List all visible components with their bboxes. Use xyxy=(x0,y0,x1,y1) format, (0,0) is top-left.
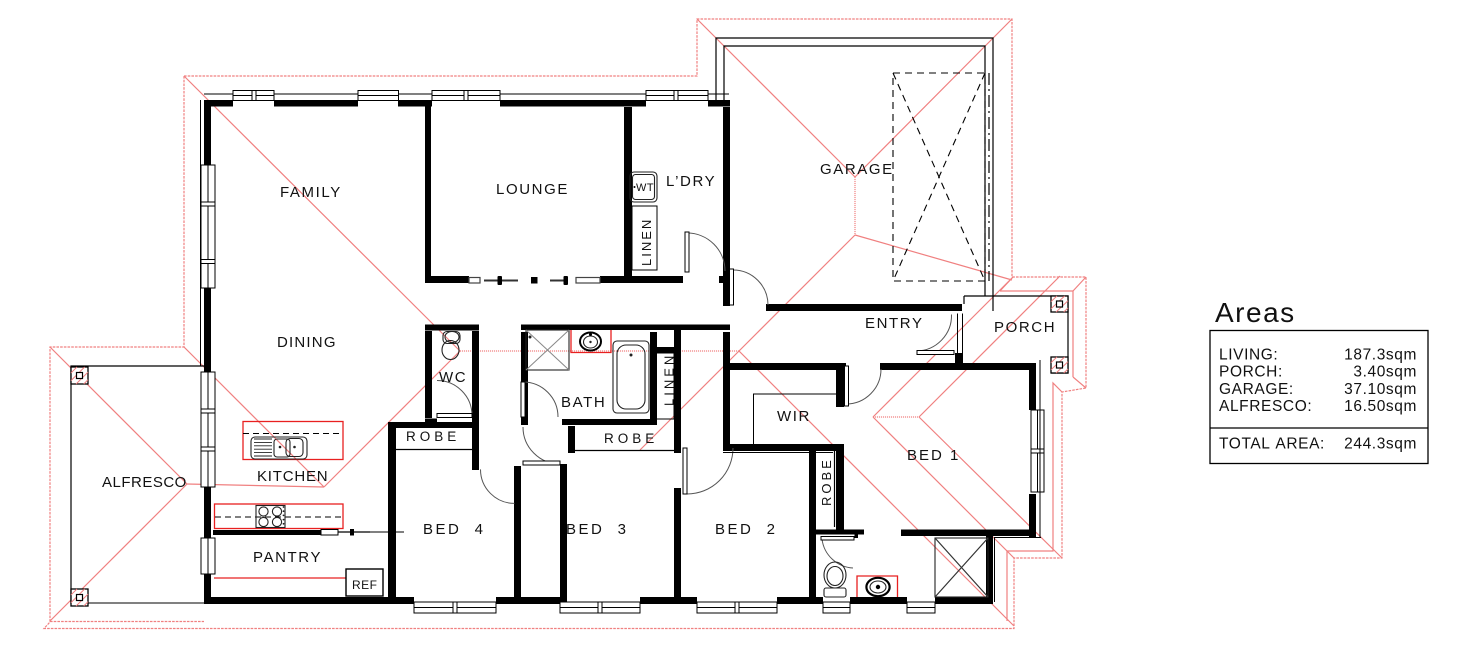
svg-text:WIR: WIR xyxy=(777,408,811,425)
svg-text:BED 4: BED 4 xyxy=(423,521,486,538)
svg-text:REF: REF xyxy=(352,578,378,592)
svg-text:3.40sqm: 3.40sqm xyxy=(1353,364,1417,381)
svg-text:PANTRY: PANTRY xyxy=(253,549,322,566)
svg-text:16.50sqm: 16.50sqm xyxy=(1344,398,1417,415)
svg-text:ROBE: ROBE xyxy=(819,457,834,506)
svg-text:PORCH: PORCH xyxy=(994,319,1056,336)
svg-text:DINING: DINING xyxy=(277,334,337,351)
svg-text:187.3sqm: 187.3sqm xyxy=(1344,347,1417,364)
svg-text:37.10sqm: 37.10sqm xyxy=(1344,381,1417,398)
svg-text:WT: WT xyxy=(636,182,654,194)
svg-text:ALFRESCO: ALFRESCO xyxy=(102,474,187,491)
svg-text:ENTRY: ENTRY xyxy=(865,315,924,332)
svg-text:Areas: Areas xyxy=(1215,297,1296,328)
svg-text:PORCH:: PORCH: xyxy=(1219,364,1283,381)
svg-text:LOUNGE: LOUNGE xyxy=(496,181,569,198)
svg-text:LIVING:: LIVING: xyxy=(1219,347,1278,364)
svg-text:LINEN: LINEN xyxy=(662,353,677,406)
svg-text:KITCHEN: KITCHEN xyxy=(257,468,328,485)
svg-text:GARAGE: GARAGE xyxy=(820,161,894,178)
svg-text:ROBE: ROBE xyxy=(406,429,460,444)
svg-text:ALFRESCO:: ALFRESCO: xyxy=(1219,398,1312,415)
svg-text:FAMILY: FAMILY xyxy=(280,184,342,201)
svg-text:TOTAL AREA:: TOTAL AREA: xyxy=(1219,436,1325,453)
svg-text:244.3sqm: 244.3sqm xyxy=(1344,436,1417,453)
svg-text:L’DRY: L’DRY xyxy=(666,173,716,190)
svg-text:ROBE: ROBE xyxy=(604,431,658,446)
svg-text:BED 3: BED 3 xyxy=(566,521,629,538)
svg-text:BATH: BATH xyxy=(561,394,606,411)
svg-text:WC: WC xyxy=(439,369,467,386)
svg-text:GARAGE:: GARAGE: xyxy=(1219,381,1294,398)
svg-text:LINEN: LINEN xyxy=(639,218,654,266)
svg-text:BED 1: BED 1 xyxy=(907,447,960,464)
svg-text:BED 2: BED 2 xyxy=(715,521,778,538)
